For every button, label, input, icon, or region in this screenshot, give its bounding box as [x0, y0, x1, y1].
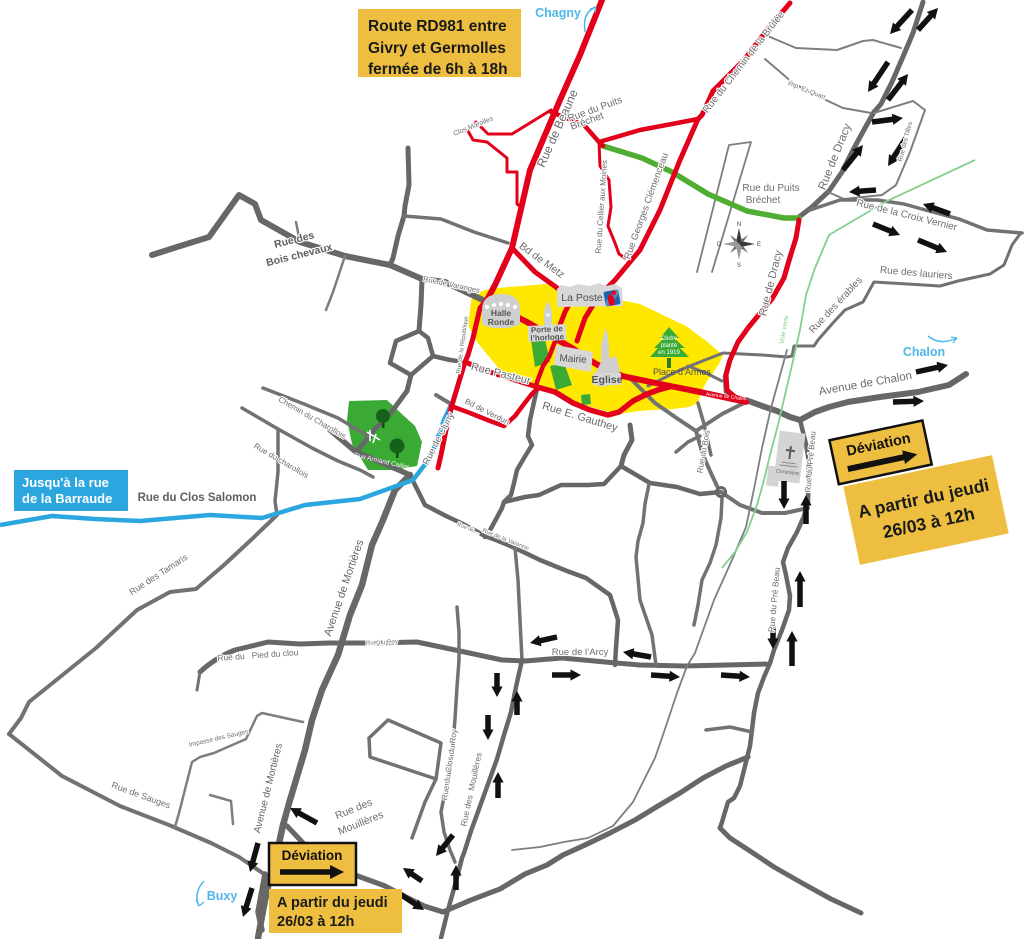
svg-text:Place d’Armes: Place d’Armes	[653, 367, 712, 377]
svg-text:Givry et Germolles: Givry et Germolles	[368, 40, 506, 57]
svg-text:Cèdre: Cèdre	[661, 336, 678, 342]
svg-text:planté: planté	[661, 343, 678, 349]
svg-text:Déviation: Déviation	[282, 848, 343, 863]
svg-text:Route RD981 entre: Route RD981 entre	[368, 18, 507, 35]
svg-text:fermée de 6h à 18h: fermée de 6h à 18h	[368, 61, 508, 78]
svg-text:l’horloge: l’horloge	[530, 332, 565, 343]
svg-text:A partir du jeudi: A partir du jeudi	[277, 895, 388, 911]
svg-text:en 1919: en 1919	[658, 350, 680, 356]
svg-text:La Poste: La Poste	[561, 292, 603, 304]
svg-text:Rue du Clos Salomon: Rue du Clos Salomon	[138, 492, 257, 504]
svg-text:Mairie: Mairie	[559, 353, 587, 366]
svg-text:Eglise: Eglise	[592, 374, 623, 386]
svg-text:S: S	[737, 263, 741, 269]
svg-text:Jusqu'à la rue: Jusqu'à la rue	[22, 475, 109, 490]
svg-text:Rue de l’Arcy: Rue de l’Arcy	[552, 647, 609, 658]
svg-text:de la Barraude: de la Barraude	[22, 491, 112, 506]
svg-text:Rue du Puits: Rue du Puits	[742, 183, 799, 194]
svg-text:Chagny: Chagny	[535, 6, 581, 20]
svg-text:26/03 à 12h: 26/03 à 12h	[277, 914, 354, 930]
svg-text:N: N	[737, 222, 741, 228]
svg-text:Ronde: Ronde	[488, 317, 515, 327]
svg-text:O: O	[717, 242, 722, 248]
svg-text:E: E	[757, 242, 761, 248]
svg-text:Buxy: Buxy	[207, 889, 238, 903]
svg-text:Bréchet: Bréchet	[746, 195, 781, 206]
svg-text:Chalon: Chalon	[903, 345, 945, 359]
